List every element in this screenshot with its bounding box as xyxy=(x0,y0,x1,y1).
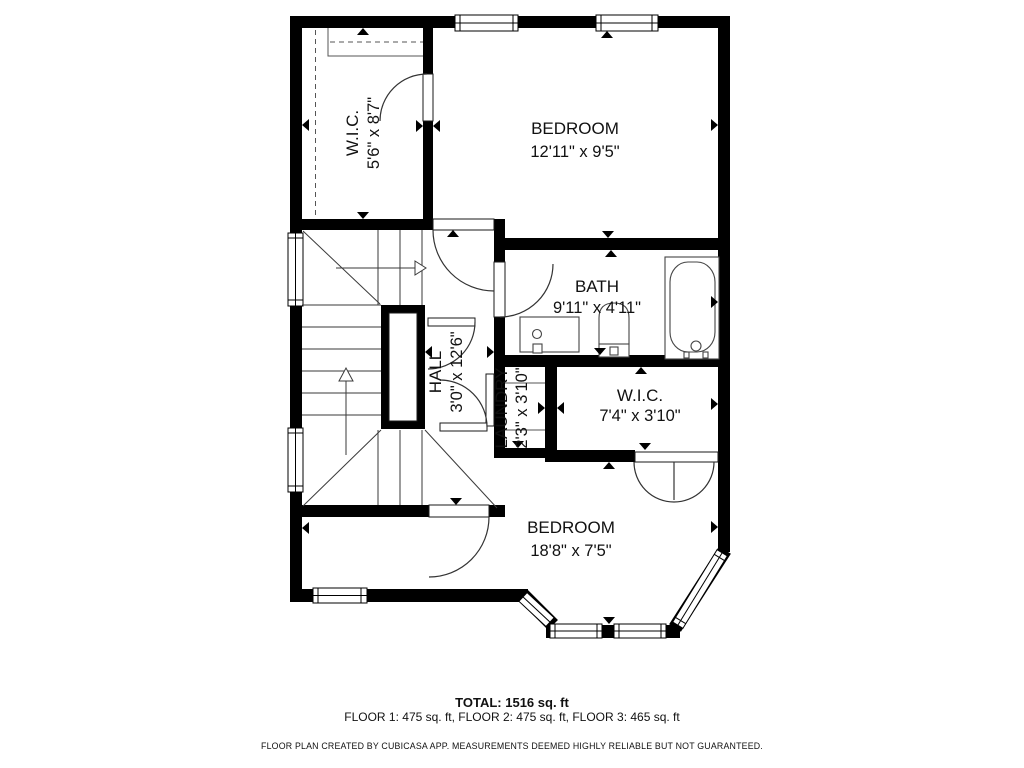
wall-wic1-right-lower xyxy=(423,120,433,230)
door-arc-bath xyxy=(500,264,553,317)
laundry-dims: 2'3" x 3'10" xyxy=(513,367,531,448)
door-arc-bedroom1 xyxy=(433,230,494,291)
door-leaf-hall-lower xyxy=(440,423,487,431)
wic2-dims: 7'4" x 3'10" xyxy=(599,407,680,425)
door-leaf-hall-upper xyxy=(428,318,475,326)
tick-wic2-left-b xyxy=(557,402,564,414)
wall-hall-junction xyxy=(494,219,505,262)
door-leaf-wic1 xyxy=(423,74,433,121)
wic1-dims: 5'6" x 8'7" xyxy=(365,97,383,169)
tick-bay-bottom xyxy=(603,617,615,624)
tick-wic2-right xyxy=(711,398,718,410)
room-label-bedroom2: BEDROOM 18'8" x 7'5" xyxy=(527,518,615,560)
bedroom2-dims: 18'8" x 7'5" xyxy=(530,542,611,560)
door-arc-wic1 xyxy=(380,74,427,121)
bathtub xyxy=(665,257,719,359)
room-label-wic2: W.I.C. 7'4" x 3'10" xyxy=(599,386,680,425)
tick-wic2-top xyxy=(635,367,647,374)
wic2-name: W.I.C. xyxy=(617,386,663,405)
tick-hall-top-opening xyxy=(447,230,459,237)
window-bedroom2-bottom xyxy=(313,588,367,603)
wall-wic1-right-upper xyxy=(423,16,433,75)
hall-dims: 3'0" x 12'6" xyxy=(448,331,466,412)
floor-areas-text: FLOOR 1: 475 sq. ft, FLOOR 2: 475 sq. ft… xyxy=(344,710,680,724)
bath-dims: 9'11" x 4'11" xyxy=(553,299,641,317)
door-opening-bedroom2 xyxy=(429,505,489,517)
tick-wic1-left xyxy=(302,119,309,131)
stair-break-line-bottom xyxy=(303,430,381,506)
stair-core-inner xyxy=(389,313,417,421)
tick-bedroom2-right xyxy=(711,521,718,533)
tick-closet-bottom xyxy=(603,462,615,469)
door-arc-bedroom2 xyxy=(429,517,489,577)
tick-hall-right xyxy=(487,346,494,358)
window-bay-bottom-left xyxy=(550,624,602,638)
tick-bedroom1-top xyxy=(601,31,613,38)
wic1-name: W.I.C. xyxy=(343,110,362,156)
window-bedroom1-top-right xyxy=(596,15,658,31)
bedroom1-name: BEDROOM xyxy=(531,119,619,138)
door-leaf-bath xyxy=(494,262,505,317)
wall-right xyxy=(718,16,730,552)
window-bay-bottom-right xyxy=(614,624,666,638)
tick-wic1-door-right xyxy=(433,120,440,132)
stair-arrow-head-up xyxy=(339,368,353,381)
room-label-bedroom1: BEDROOM 12'11" x 9'5" xyxy=(530,119,619,161)
tick-wic1-bottom xyxy=(357,212,369,219)
door-opening-bedroom1 xyxy=(433,219,494,230)
wall-wic2-left xyxy=(545,367,557,450)
tick-bedroom1-right xyxy=(711,119,718,131)
window-bay-left-diagonal xyxy=(519,592,554,626)
tick-bath-top xyxy=(605,250,617,257)
bedroom2-name: BEDROOM xyxy=(527,518,615,537)
window-bay-right-diagonal xyxy=(673,550,728,629)
laundry-name: LAUNDRY xyxy=(492,368,511,449)
tick-wic2-bottom xyxy=(639,443,651,450)
wall-wic2-bottom xyxy=(545,450,635,462)
wall-bath-top xyxy=(505,238,730,250)
sink-vanity xyxy=(520,317,579,353)
tick-bedroom1-bottom xyxy=(602,231,614,238)
tick-bedroom2-left xyxy=(302,522,309,534)
bedroom1-dims: 12'11" x 9'5" xyxy=(530,143,619,161)
floor-plan-page: W.I.C. 5'6" x 8'7" BEDROOM 12'11" x 9'5"… xyxy=(0,0,1024,768)
door-opening-closet xyxy=(635,452,718,462)
tick-wic2-left-a xyxy=(538,402,545,414)
wall-wic1-bottom xyxy=(290,219,433,230)
room-label-laundry: LAUNDRY 2'3" x 3'10" xyxy=(492,367,531,448)
disclaimer-text: FLOOR PLAN CREATED BY CUBICASA APP. MEAS… xyxy=(261,741,763,751)
tick-wic1-top xyxy=(357,28,369,35)
room-label-bath: BATH 9'11" x 4'11" xyxy=(553,277,641,317)
room-label-wic1: W.I.C. 5'6" x 8'7" xyxy=(343,97,383,169)
window-stairs-left-lower xyxy=(288,428,303,492)
tick-bedroom2-top xyxy=(450,498,462,505)
room-label-hall: HALL 3'0" x 12'6" xyxy=(426,331,466,412)
wall-bedroom2-top-right xyxy=(489,505,505,517)
window-bedroom1-top-left xyxy=(455,15,518,31)
tick-wic1-door-left xyxy=(416,120,423,132)
floor-plan-canvas: W.I.C. 5'6" x 8'7" BEDROOM 12'11" x 9'5"… xyxy=(0,0,1024,768)
stair-arrow-head-right xyxy=(415,261,426,275)
wall-bedroom2-top-left xyxy=(290,505,429,517)
window-stairs-left-upper xyxy=(288,233,303,306)
hall-name: HALL xyxy=(426,351,445,394)
stair-winder-line xyxy=(425,430,497,508)
bath-name: BATH xyxy=(575,277,619,296)
summary: TOTAL: 1516 sq. ft FLOOR 1: 475 sq. ft, … xyxy=(261,695,763,751)
walls xyxy=(290,16,730,632)
total-area-text: TOTAL: 1516 sq. ft xyxy=(455,695,569,710)
